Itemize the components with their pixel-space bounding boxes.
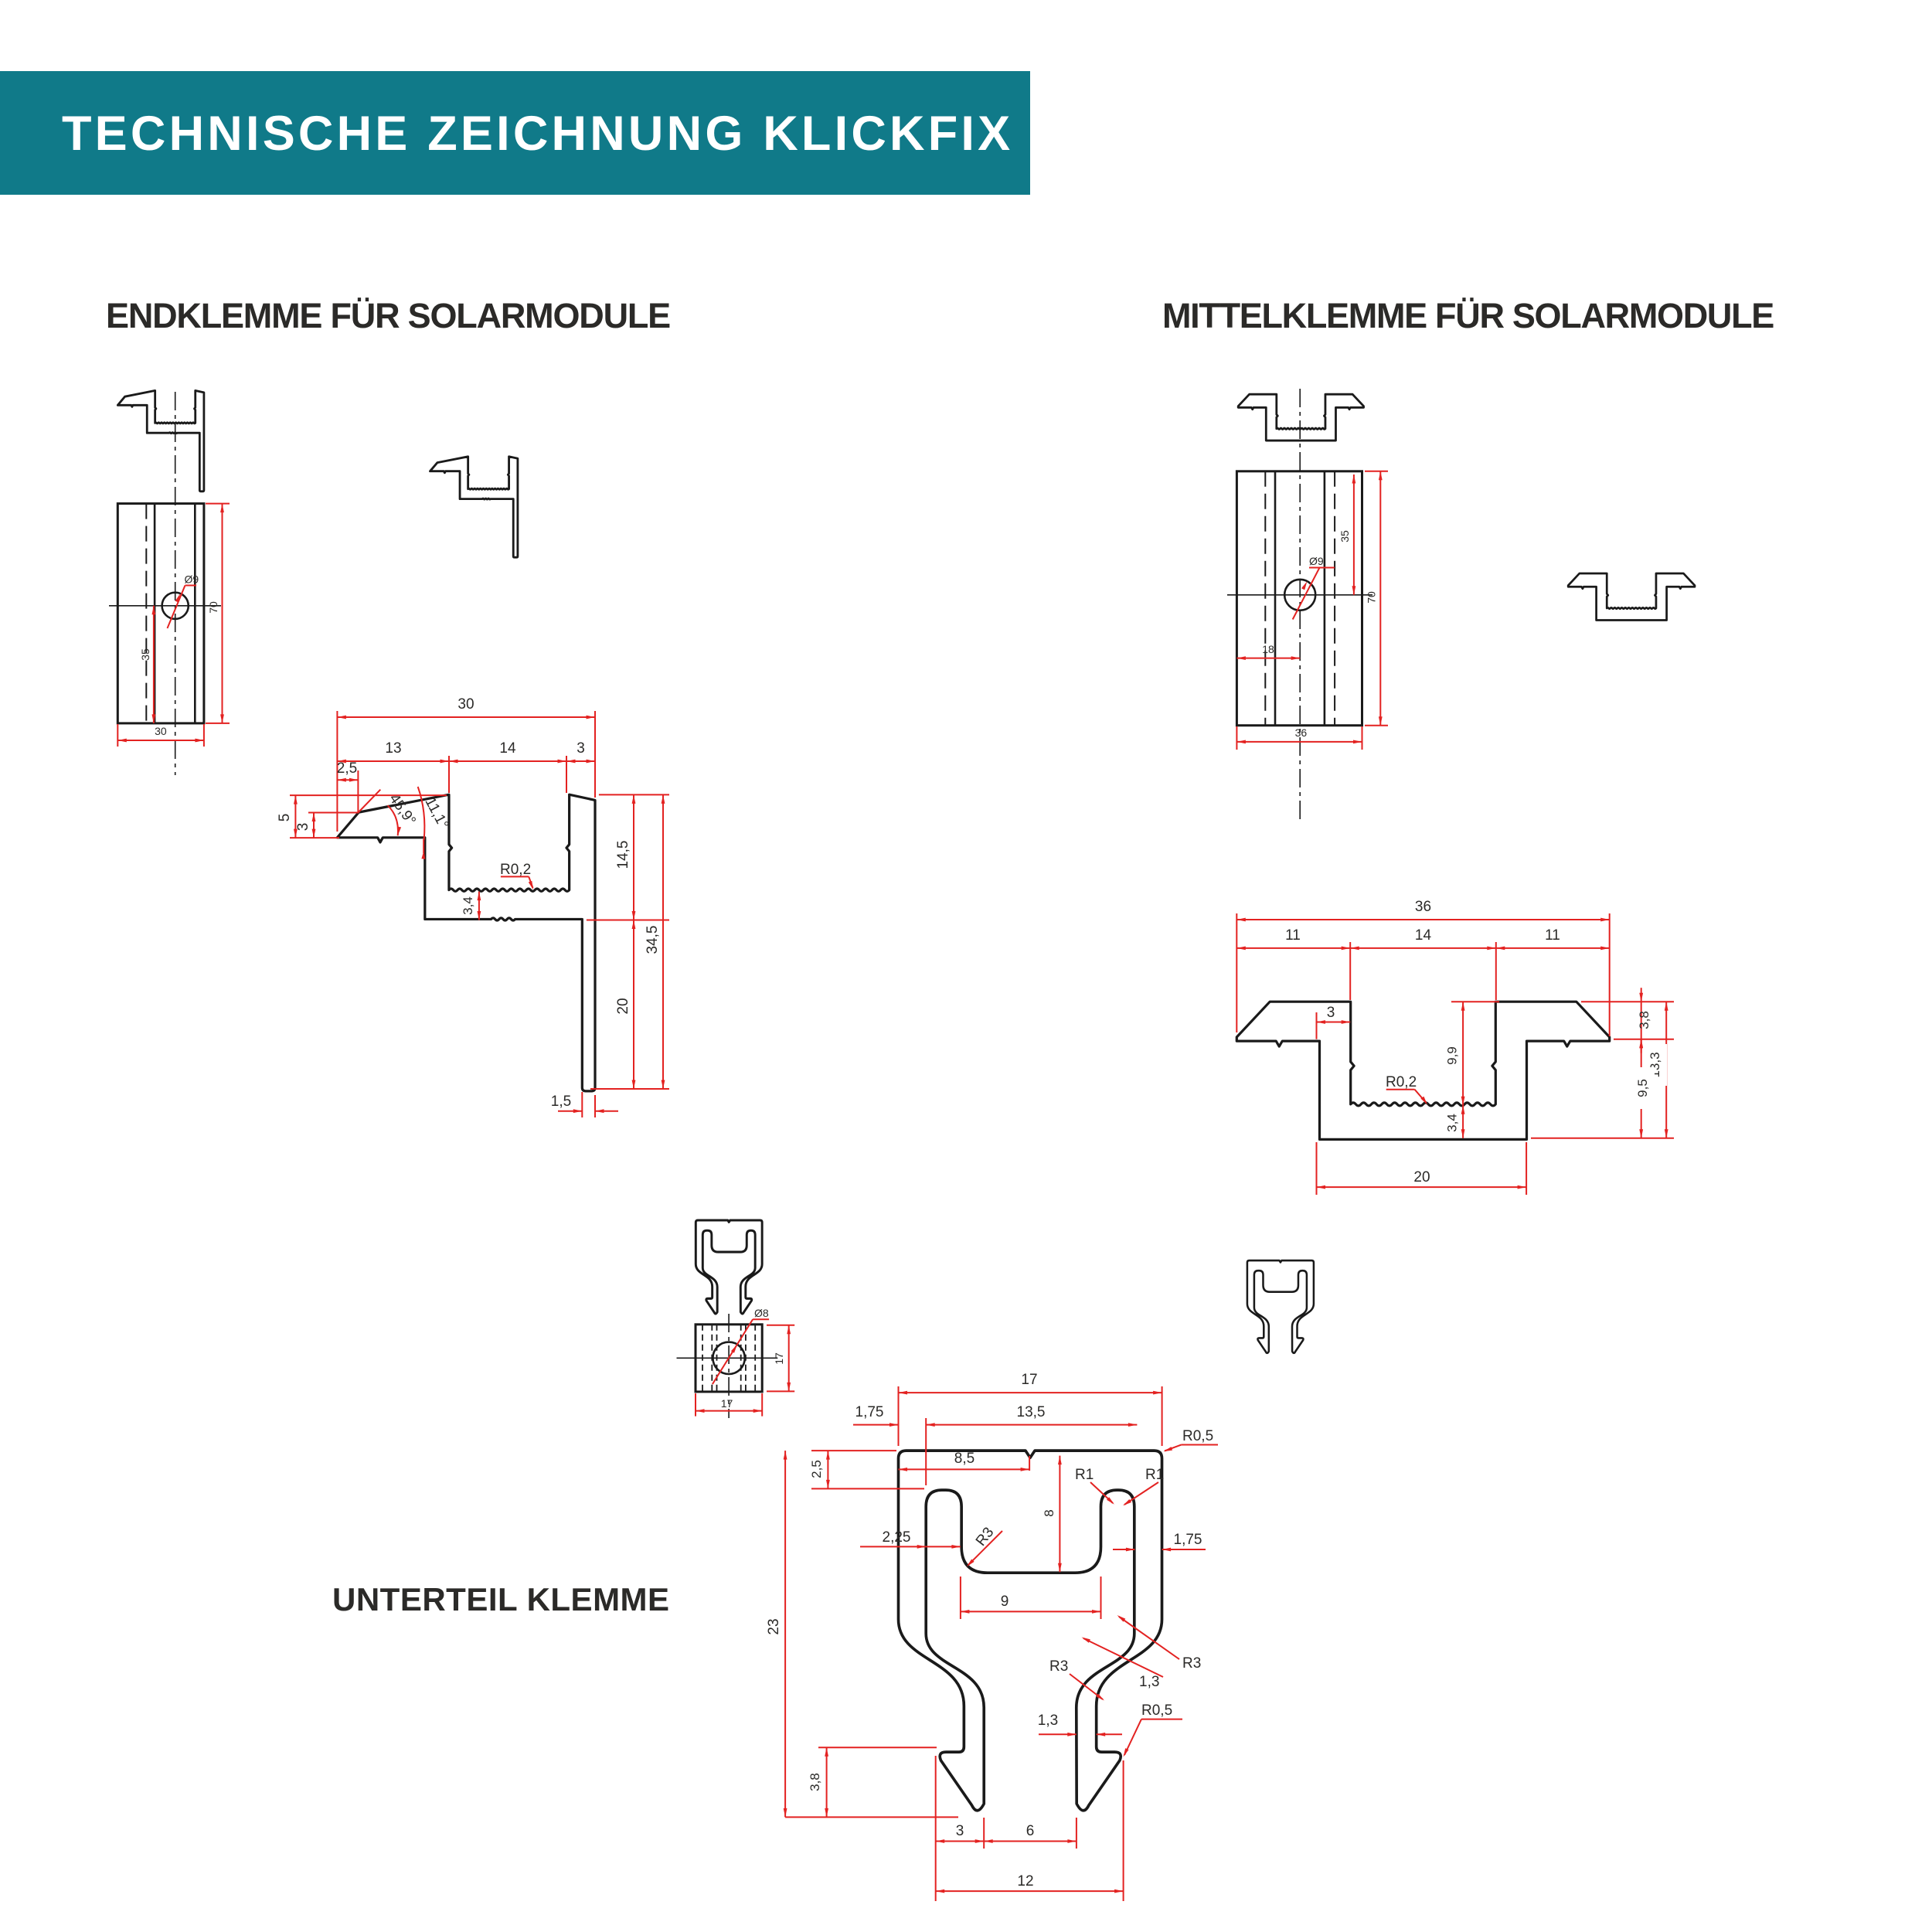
svg-text:20: 20 (1413, 1169, 1430, 1185)
svg-text:R1: R1 (1075, 1467, 1094, 1483)
svg-text:30: 30 (457, 696, 474, 713)
svg-text:UNTERTEIL KLEMME: UNTERTEIL KLEMME (332, 1581, 670, 1617)
svg-text:17: 17 (1021, 1372, 1037, 1388)
svg-text:3: 3 (295, 823, 311, 832)
svg-text:3,4: 3,4 (1445, 1114, 1460, 1132)
svg-text:R0,2: R0,2 (1386, 1074, 1417, 1090)
svg-text:14: 14 (499, 740, 516, 757)
svg-text:R1: R1 (1145, 1467, 1164, 1483)
svg-text:30: 30 (155, 725, 167, 737)
svg-text:Ø8: Ø8 (754, 1307, 769, 1319)
svg-text:8: 8 (1042, 1509, 1056, 1516)
svg-text:3: 3 (956, 1823, 964, 1839)
svg-text:35: 35 (1338, 530, 1351, 543)
svg-text:2,5: 2,5 (809, 1460, 824, 1478)
svg-text:R0,2: R0,2 (500, 862, 531, 878)
svg-text:3,8: 3,8 (1637, 1011, 1651, 1029)
svg-text:1,5: 1,5 (551, 1094, 571, 1110)
svg-text:6: 6 (1026, 1823, 1035, 1839)
svg-text:R0,5: R0,5 (1182, 1428, 1213, 1444)
svg-text:20: 20 (615, 998, 631, 1014)
svg-text:R3: R3 (1049, 1658, 1068, 1675)
svg-text:Ø9: Ø9 (1309, 555, 1324, 567)
svg-text:5: 5 (277, 814, 293, 822)
svg-text:R0,5: R0,5 (1141, 1702, 1172, 1719)
svg-text:2,25: 2,25 (883, 1529, 911, 1546)
svg-text:36: 36 (1415, 899, 1431, 915)
svg-text:9: 9 (1001, 1594, 1009, 1610)
svg-text:Ø9: Ø9 (185, 573, 199, 586)
svg-text:14: 14 (1415, 927, 1432, 944)
svg-text:1,75: 1,75 (855, 1404, 884, 1420)
svg-text:18: 18 (1262, 643, 1274, 655)
svg-text:12: 12 (1017, 1873, 1033, 1889)
svg-text:11: 11 (1545, 927, 1560, 944)
svg-text:70: 70 (1366, 591, 1378, 604)
svg-text:1,3: 1,3 (1139, 1674, 1159, 1690)
svg-text:70: 70 (207, 601, 219, 614)
svg-text:13,5: 13,5 (1017, 1404, 1046, 1420)
svg-text:3: 3 (1327, 1005, 1335, 1021)
svg-text:TECHNISCHE ZEICHNUNG KLICKFIX: TECHNISCHE ZEICHNUNG KLICKFIX (62, 107, 1013, 161)
svg-text:8,5: 8,5 (954, 1451, 975, 1467)
svg-text:23: 23 (766, 1618, 782, 1634)
svg-text:14,5: 14,5 (615, 841, 631, 869)
svg-text:35: 35 (139, 648, 151, 661)
svg-text:9,5: 9,5 (1635, 1079, 1650, 1097)
svg-text:17: 17 (721, 1397, 733, 1410)
svg-text:3,4: 3,4 (461, 896, 475, 915)
svg-text:11: 11 (1285, 927, 1301, 944)
svg-text:2,5: 2,5 (337, 760, 357, 777)
svg-text:3: 3 (577, 740, 585, 757)
svg-text:13: 13 (385, 740, 401, 757)
svg-text:1,3: 1,3 (1038, 1713, 1058, 1729)
svg-text:9,9: 9,9 (1445, 1046, 1460, 1065)
svg-text:17: 17 (773, 1352, 785, 1365)
svg-text:36: 36 (1295, 726, 1308, 739)
svg-text:3,8: 3,8 (808, 1773, 822, 1791)
svg-text:1,75: 1,75 (1174, 1532, 1202, 1548)
svg-text:MITTELKLEMME FÜR SOLARMODULE: MITTELKLEMME FÜR SOLARMODULE (1162, 296, 1774, 335)
svg-text:R3: R3 (1182, 1655, 1201, 1672)
svg-text:34,5: 34,5 (645, 926, 661, 954)
svg-text:ENDKLEMME FÜR SOLARMODULE: ENDKLEMME FÜR SOLARMODULE (106, 296, 670, 335)
